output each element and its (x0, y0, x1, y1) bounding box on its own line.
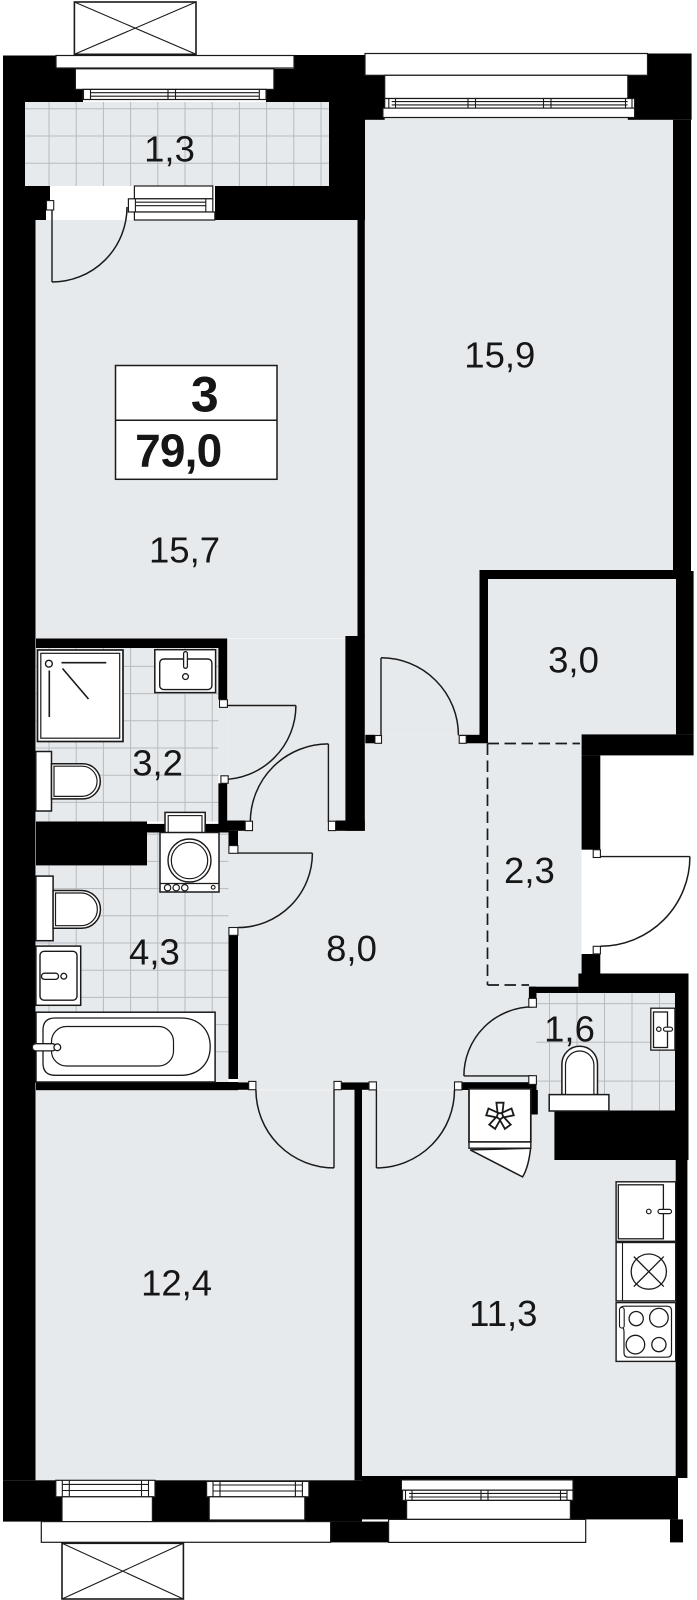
svg-text:2,3: 2,3 (504, 850, 555, 891)
svg-text:15,7: 15,7 (149, 529, 220, 570)
svg-text:15,9: 15,9 (464, 335, 535, 376)
svg-text:3: 3 (191, 367, 219, 423)
svg-text:3,0: 3,0 (548, 640, 599, 681)
svg-text:8,0: 8,0 (326, 928, 377, 969)
svg-text:79,0: 79,0 (135, 425, 221, 477)
svg-text:12,4: 12,4 (141, 1263, 212, 1304)
svg-text:11,3: 11,3 (469, 1293, 537, 1334)
svg-text:1,3: 1,3 (144, 129, 195, 170)
svg-text:1,6: 1,6 (544, 1009, 595, 1050)
svg-text:3,2: 3,2 (132, 743, 183, 784)
svg-text:4,3: 4,3 (129, 932, 180, 973)
